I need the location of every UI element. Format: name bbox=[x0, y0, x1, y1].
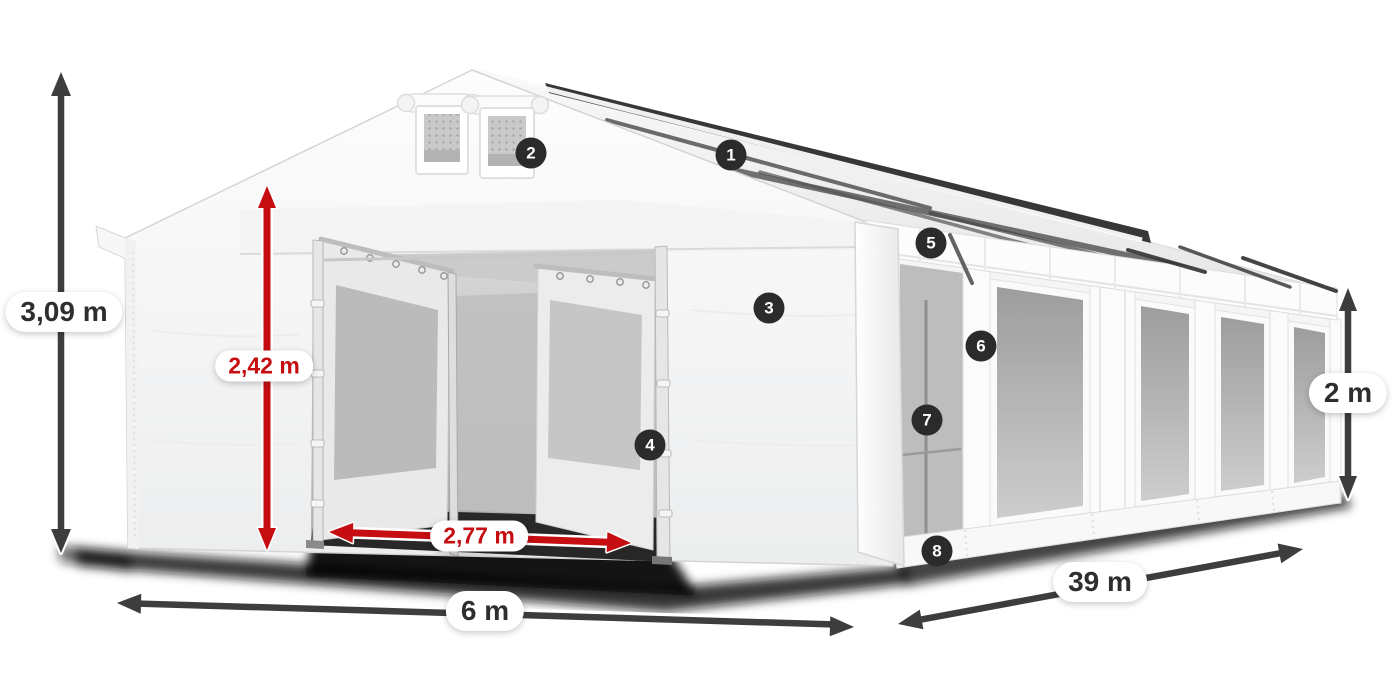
door-panel-right bbox=[536, 266, 657, 550]
callout-badge-3: 3 bbox=[754, 293, 785, 324]
dimension-label-tent-length: 39 m bbox=[1053, 562, 1147, 602]
dimension-label-entrance-width: 2,77 m bbox=[430, 521, 528, 552]
corner-column bbox=[855, 222, 904, 566]
tent-dimensions-diagram: 3,09 m 2,42 m 2,77 m 6 m 39 m 2 m 1 2 3 … bbox=[0, 0, 1400, 700]
door-panel-left bbox=[320, 239, 452, 540]
door-jamb-left bbox=[311, 240, 324, 546]
callout-badge-8: 8 bbox=[922, 536, 953, 567]
callout-badge-6: 6 bbox=[966, 331, 997, 362]
door-middle-post bbox=[448, 272, 458, 556]
callout-badge-5: 5 bbox=[916, 228, 947, 259]
callout-badge-1: 1 bbox=[716, 140, 747, 171]
callout-badge-2: 2 bbox=[516, 138, 547, 169]
dimension-label-side-height: 2 m bbox=[1309, 373, 1387, 413]
dimension-label-entrance-height: 2,42 m bbox=[215, 351, 313, 382]
dimension-label-tent-width: 6 m bbox=[446, 591, 524, 631]
dimension-label-total-height: 3,09 m bbox=[5, 292, 122, 332]
tent-render bbox=[0, 0, 1400, 700]
callout-badge-7: 7 bbox=[912, 405, 943, 436]
callout-badge-4: 4 bbox=[635, 430, 666, 461]
entrance-opening bbox=[306, 239, 672, 565]
